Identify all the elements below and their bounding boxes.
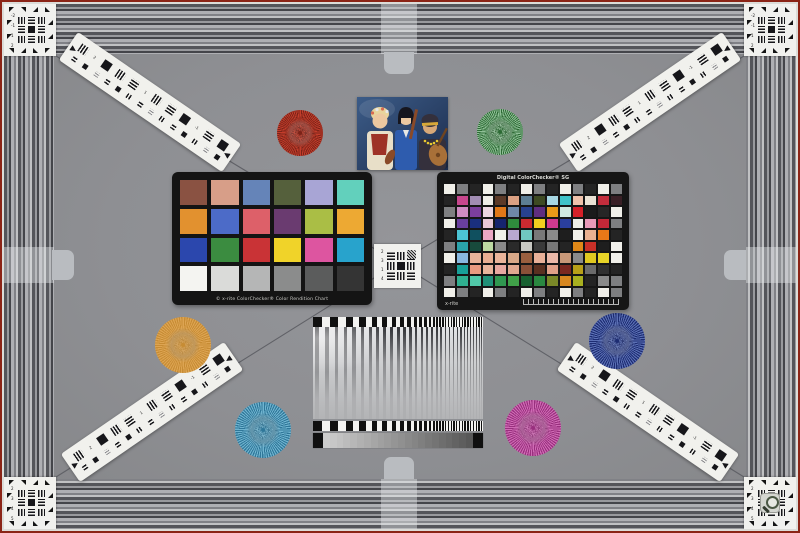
pattern-glyph xyxy=(387,272,395,280)
sg-color-patch xyxy=(573,242,584,252)
corner-wedge xyxy=(48,507,53,512)
sg-color-patch xyxy=(521,230,532,240)
sg-color-patch xyxy=(495,276,506,286)
strip-number: 2 xyxy=(590,365,594,370)
pattern-glyph xyxy=(114,69,127,82)
sg-color-patch xyxy=(483,230,494,240)
pattern-glyph xyxy=(18,17,25,24)
sg-color-patch xyxy=(534,207,545,217)
strip-number: -1 xyxy=(688,65,694,71)
microtext-block xyxy=(158,411,165,418)
corner-wedge xyxy=(21,521,26,526)
pattern-glyph xyxy=(180,396,187,403)
pattern-glyph xyxy=(178,113,191,126)
corner-number: -1 xyxy=(11,24,15,28)
sg-color-patch xyxy=(521,196,532,206)
sg-color-patch xyxy=(521,207,532,217)
sg-color-patch xyxy=(534,196,545,206)
sg-ruler-ticks xyxy=(523,299,619,305)
sg-color-patch xyxy=(534,230,545,240)
pattern-glyph xyxy=(28,26,35,33)
corner-number: 2 xyxy=(11,487,14,491)
sg-color-patch xyxy=(611,207,622,217)
pattern-glyph xyxy=(700,71,707,78)
sg-color-patch xyxy=(457,196,468,206)
star-center-dot xyxy=(181,343,185,347)
strip-endcap xyxy=(69,45,77,53)
pattern-glyph xyxy=(147,418,154,425)
corner-number: 4 xyxy=(11,507,14,511)
xrite-logo: x-rite xyxy=(445,301,458,307)
color-patch xyxy=(180,209,207,234)
star-center-dot xyxy=(531,426,535,430)
sg-color-patch xyxy=(444,288,455,298)
sg-color-patch xyxy=(521,219,532,229)
pattern-glyph xyxy=(387,262,395,270)
siemens-star-green xyxy=(477,109,523,155)
color-patch xyxy=(337,266,364,291)
sg-color-patch xyxy=(585,207,596,217)
sg-color-patch xyxy=(521,288,532,298)
sg-color-patch xyxy=(598,276,609,286)
pattern-glyph xyxy=(778,17,785,24)
pattern-glyph xyxy=(147,399,160,412)
sg-color-patch xyxy=(483,288,494,298)
center-target-number: 4 xyxy=(381,277,384,281)
pattern-glyph xyxy=(659,79,672,92)
pattern-glyph xyxy=(77,44,90,57)
corner-number: 2 xyxy=(751,487,754,491)
sg-color-patch xyxy=(521,184,532,194)
center-target-number: 3 xyxy=(381,259,384,263)
pattern-glyph xyxy=(38,17,45,24)
sg-color-patch xyxy=(444,196,455,206)
strip-number: 1 xyxy=(637,101,641,106)
corner-wedge xyxy=(761,48,766,53)
sg-color-patch xyxy=(534,253,545,263)
strip-endcap xyxy=(567,355,575,363)
sg-color-patch xyxy=(483,253,494,263)
corner-wedge xyxy=(45,521,50,526)
sg-color-patch xyxy=(508,184,519,194)
pattern-glyph xyxy=(161,389,174,402)
sg-color-patch xyxy=(457,219,468,229)
pattern-glyph xyxy=(28,509,35,516)
pattern-glyph xyxy=(110,424,123,437)
center-target-number: 1 xyxy=(381,268,384,272)
color-patch xyxy=(243,266,270,291)
pattern-glyph xyxy=(778,26,785,33)
pattern-glyph xyxy=(696,53,709,66)
pattern-glyph xyxy=(38,499,45,506)
portrait-test-image xyxy=(357,97,448,170)
sg-color-patch xyxy=(508,276,519,286)
colorchecker-caption: © x-rite ColorChecker® Color Rendition C… xyxy=(172,297,372,302)
corner-number: -2 xyxy=(11,14,15,18)
pattern-glyph xyxy=(612,131,619,138)
magnifier-ring xyxy=(766,496,779,509)
pattern-glyph xyxy=(714,449,727,462)
sg-color-patch xyxy=(457,230,468,240)
microtext-block xyxy=(203,146,210,153)
corner-number: 5 xyxy=(11,517,14,521)
pattern-glyph xyxy=(18,490,25,497)
star-center-dot xyxy=(615,339,619,343)
sg-color-patch xyxy=(457,207,468,217)
sg-color-patch xyxy=(547,242,558,252)
corner-wedge xyxy=(45,480,50,485)
corner-wedge xyxy=(785,480,790,485)
pattern-glyph xyxy=(71,55,78,62)
sg-color-patch xyxy=(598,242,609,252)
sg-color-patch xyxy=(457,184,468,194)
pattern-glyph xyxy=(18,509,25,516)
sg-color-patch xyxy=(560,265,571,275)
sg-color-patch xyxy=(598,288,609,298)
corner-number: 3 xyxy=(751,497,754,501)
pattern-glyph xyxy=(598,369,611,382)
color-patch xyxy=(274,266,301,291)
sg-color-patch xyxy=(560,230,571,240)
sg-color-patch xyxy=(521,276,532,286)
corner-wedge xyxy=(33,480,38,485)
pattern-glyph xyxy=(645,89,658,102)
sg-color-patch xyxy=(444,242,455,252)
sg-color-patch xyxy=(483,242,494,252)
microtext-block xyxy=(591,380,598,387)
pattern-glyph xyxy=(613,396,620,403)
pattern-glyph xyxy=(397,252,405,260)
sg-color-patch xyxy=(611,276,622,286)
sg-color-patch xyxy=(483,207,494,217)
microtext-block xyxy=(711,63,718,70)
pattern-glyph xyxy=(18,26,25,33)
camera-test-chart: 21-121-121-121-1 xyxy=(0,0,800,533)
pattern-glyph xyxy=(662,414,675,427)
corner-wedge xyxy=(9,7,14,12)
corner-bar-patterns xyxy=(18,490,46,516)
corner-number: 3 xyxy=(11,497,14,501)
pattern-glyph xyxy=(648,404,661,417)
color-patch xyxy=(243,238,270,263)
sg-color-patch xyxy=(598,196,609,206)
sg-color-patch xyxy=(585,242,596,252)
corner-bar-patterns xyxy=(18,17,46,43)
pattern-glyph xyxy=(73,449,86,462)
strip-number: 2 xyxy=(92,55,96,60)
color-patch xyxy=(337,238,364,263)
sg-color-patch xyxy=(444,276,455,286)
pattern-glyph xyxy=(602,388,609,395)
sg-color-patch xyxy=(444,253,455,263)
sg-color-patch xyxy=(470,230,481,240)
center-target-number: 2 xyxy=(381,250,384,254)
sg-color-patch xyxy=(534,288,545,298)
sg-color-patch xyxy=(495,265,506,275)
sg-color-patch xyxy=(560,207,571,217)
star-center-dot xyxy=(261,428,265,432)
corner-wedge xyxy=(773,521,778,526)
corner-wedge xyxy=(773,480,778,485)
sg-color-patch xyxy=(457,265,468,275)
corner-wedge xyxy=(33,48,38,53)
color-patch xyxy=(274,180,301,205)
sg-color-patch xyxy=(521,253,532,263)
sg-color-patch xyxy=(611,230,622,240)
sg-color-patch xyxy=(470,219,481,229)
pattern-glyph xyxy=(690,448,697,455)
sg-color-patch xyxy=(573,196,584,206)
pattern-glyph xyxy=(164,104,177,117)
sg-color-patch xyxy=(560,242,571,252)
corner-number: -1 xyxy=(751,24,755,28)
strip-number: 1 xyxy=(143,90,147,95)
siemens-star-blue xyxy=(589,313,645,369)
pattern-glyph xyxy=(387,252,395,260)
pattern-glyph xyxy=(125,433,132,440)
color-patch xyxy=(337,209,364,234)
sg-color-patch xyxy=(508,265,519,275)
pattern-glyph xyxy=(212,354,225,367)
sg-color-patch xyxy=(521,265,532,275)
sg-color-patch xyxy=(483,219,494,229)
sg-color-patch xyxy=(573,219,584,229)
corner-wedge xyxy=(45,48,50,53)
pattern-glyph xyxy=(612,379,625,392)
pattern-glyph xyxy=(689,78,696,85)
sg-color-patch xyxy=(573,265,584,275)
microtext-block xyxy=(103,448,110,455)
corner-number: 1 xyxy=(11,34,14,38)
corner-wedge xyxy=(788,507,793,512)
pattern-glyph xyxy=(81,463,88,470)
sg-color-patch xyxy=(585,184,596,194)
sg-color-patch xyxy=(547,184,558,194)
sg-color-patch xyxy=(495,207,506,217)
color-patch xyxy=(305,180,332,205)
corner-wedge xyxy=(9,480,14,485)
sg-color-patch xyxy=(483,276,494,286)
sg-color-patch xyxy=(457,242,468,252)
corner-wedge xyxy=(21,48,26,53)
corner-wedge xyxy=(749,521,754,526)
pattern-glyph xyxy=(28,490,35,497)
sg-color-patch xyxy=(585,196,596,206)
corner-wedge xyxy=(785,7,790,12)
pattern-glyph xyxy=(38,509,45,516)
strip-endcap xyxy=(722,45,730,53)
pattern-glyph xyxy=(191,388,198,395)
pattern-glyph xyxy=(668,433,675,440)
sg-color-patch xyxy=(508,242,519,252)
corner-number: 2 xyxy=(11,44,14,48)
sg-color-patch xyxy=(444,265,455,275)
pattern-glyph xyxy=(569,365,576,372)
pattern-glyph xyxy=(202,381,209,388)
sg-color-patch xyxy=(547,276,558,286)
pattern-glyph xyxy=(115,86,122,93)
pattern-glyph xyxy=(778,36,785,43)
pattern-glyph xyxy=(214,153,221,160)
sg-color-patch xyxy=(547,288,558,298)
sg-color-patch xyxy=(611,288,622,298)
color-patch xyxy=(211,209,238,234)
color-patch xyxy=(305,238,332,263)
colorchecker-classic-chart: © x-rite ColorChecker® Color Rendition C… xyxy=(172,172,372,305)
sg-color-patch xyxy=(585,276,596,286)
magnifier-icon[interactable] xyxy=(760,493,780,513)
sg-color-patch xyxy=(483,184,494,194)
corner-wedge xyxy=(749,480,754,485)
corner-wedge xyxy=(773,7,778,12)
corner-wedge xyxy=(9,48,14,53)
pattern-glyph xyxy=(635,411,642,418)
corner-wedge xyxy=(33,7,38,12)
sg-color-patch xyxy=(611,265,622,275)
sg-color-patch xyxy=(598,230,609,240)
pattern-glyph xyxy=(407,272,415,280)
pattern-glyph xyxy=(758,26,765,33)
pattern-glyph xyxy=(150,94,163,107)
sg-color-patch xyxy=(598,219,609,229)
pattern-glyph xyxy=(673,70,686,83)
color-patch xyxy=(243,209,270,234)
pattern-glyph xyxy=(712,463,719,470)
color-patch xyxy=(180,266,207,291)
sg-color-patch xyxy=(560,276,571,286)
sg-color-patch xyxy=(444,184,455,194)
color-patch xyxy=(211,266,238,291)
corner-wedge xyxy=(788,20,793,25)
pattern-glyph xyxy=(397,272,405,280)
sg-color-patch xyxy=(598,184,609,194)
pattern-glyph xyxy=(623,123,630,130)
sg-color-patch xyxy=(560,184,571,194)
sg-color-patch xyxy=(611,242,622,252)
sg-color-patch xyxy=(470,276,481,286)
sg-color-patch xyxy=(495,253,506,263)
corner-wedge xyxy=(773,48,778,53)
sg-color-patch xyxy=(585,219,596,229)
corner-wedge xyxy=(48,34,53,39)
sg-color-patch xyxy=(598,207,609,217)
pattern-glyph xyxy=(114,441,121,448)
pattern-glyph xyxy=(202,130,215,143)
pattern-glyph xyxy=(137,101,144,108)
sg-color-patch xyxy=(585,253,596,263)
pattern-glyph xyxy=(38,36,45,43)
sg-color-patch xyxy=(560,253,571,263)
color-patch xyxy=(211,238,238,263)
corner-wedge xyxy=(21,480,26,485)
sg-color-patch xyxy=(495,230,506,240)
pattern-glyph xyxy=(224,366,231,373)
pattern-glyph xyxy=(575,354,588,367)
pattern-glyph xyxy=(38,490,45,497)
sg-color-patch xyxy=(444,219,455,229)
sg-color-patch xyxy=(534,242,545,252)
sg-color-patch xyxy=(470,265,481,275)
sg-color-patch xyxy=(560,196,571,206)
pattern-glyph xyxy=(38,26,45,33)
strip-endcap xyxy=(224,355,232,363)
pattern-glyph xyxy=(710,44,723,57)
pattern-glyph xyxy=(758,17,765,24)
color-patch xyxy=(180,238,207,263)
pattern-glyph xyxy=(104,78,111,85)
siemens-star-orange xyxy=(155,317,211,373)
sg-color-patch xyxy=(483,196,494,206)
sg-color-patch xyxy=(508,288,519,298)
pattern-glyph xyxy=(28,17,35,24)
sg-color-patch xyxy=(470,253,481,263)
corner-wedge xyxy=(48,493,53,498)
pattern-glyph xyxy=(676,423,689,436)
corner-wedge xyxy=(785,48,790,53)
corner-target-tr: -2-112 xyxy=(744,4,796,56)
center-resolution-target: 2314 xyxy=(374,244,421,288)
pattern-glyph xyxy=(181,131,188,138)
sg-color-patch xyxy=(495,184,506,194)
strip-number: -1 xyxy=(194,125,200,131)
corner-target-tl: -2-112 xyxy=(4,4,56,56)
microtext-block xyxy=(148,108,155,115)
corner-number: 4 xyxy=(751,507,754,511)
pattern-glyph xyxy=(624,403,631,410)
pattern-glyph xyxy=(768,36,775,43)
pattern-glyph xyxy=(136,426,143,433)
sg-color-patch xyxy=(611,253,622,263)
color-patch xyxy=(337,180,364,205)
sg-color-patch xyxy=(470,207,481,217)
sg-color-patch xyxy=(547,265,558,275)
pattern-glyph xyxy=(758,36,765,43)
sg-color-patch xyxy=(534,219,545,229)
sg-color-patch xyxy=(585,265,596,275)
fine-checker-block xyxy=(407,250,416,259)
sg-color-patch xyxy=(573,184,584,194)
sg-color-patch xyxy=(483,265,494,275)
sg-color-patch xyxy=(508,219,519,229)
pattern-glyph xyxy=(175,380,188,393)
color-patch xyxy=(274,209,301,234)
pattern-glyph xyxy=(590,146,597,153)
sg-color-patch xyxy=(508,207,519,217)
corner-target-bl: 2345 xyxy=(4,477,56,529)
strip-number: -1 xyxy=(692,435,698,441)
pattern-glyph xyxy=(679,441,686,448)
pattern-glyph xyxy=(18,36,25,43)
sg-color-patch xyxy=(508,253,519,263)
sg-color-patch xyxy=(573,276,584,286)
corner-target-br: 2345 xyxy=(744,477,796,529)
pattern-glyph xyxy=(645,108,652,115)
pattern-glyph xyxy=(667,93,674,100)
corner-wedge xyxy=(761,7,766,12)
star-center-dot xyxy=(298,131,302,135)
corner-wedge xyxy=(761,480,766,485)
sg-chart-title: Digital ColorChecker® SG xyxy=(437,175,629,181)
pattern-glyph xyxy=(28,36,35,43)
sg-color-patch xyxy=(547,230,558,240)
sg-color-patch xyxy=(547,253,558,263)
sg-color-patch xyxy=(573,253,584,263)
siemens-star-steel-blue xyxy=(235,402,291,458)
corner-number: -2 xyxy=(751,14,755,18)
sg-color-patch xyxy=(470,196,481,206)
pattern-glyph xyxy=(657,426,664,433)
corner-wedge xyxy=(788,493,793,498)
